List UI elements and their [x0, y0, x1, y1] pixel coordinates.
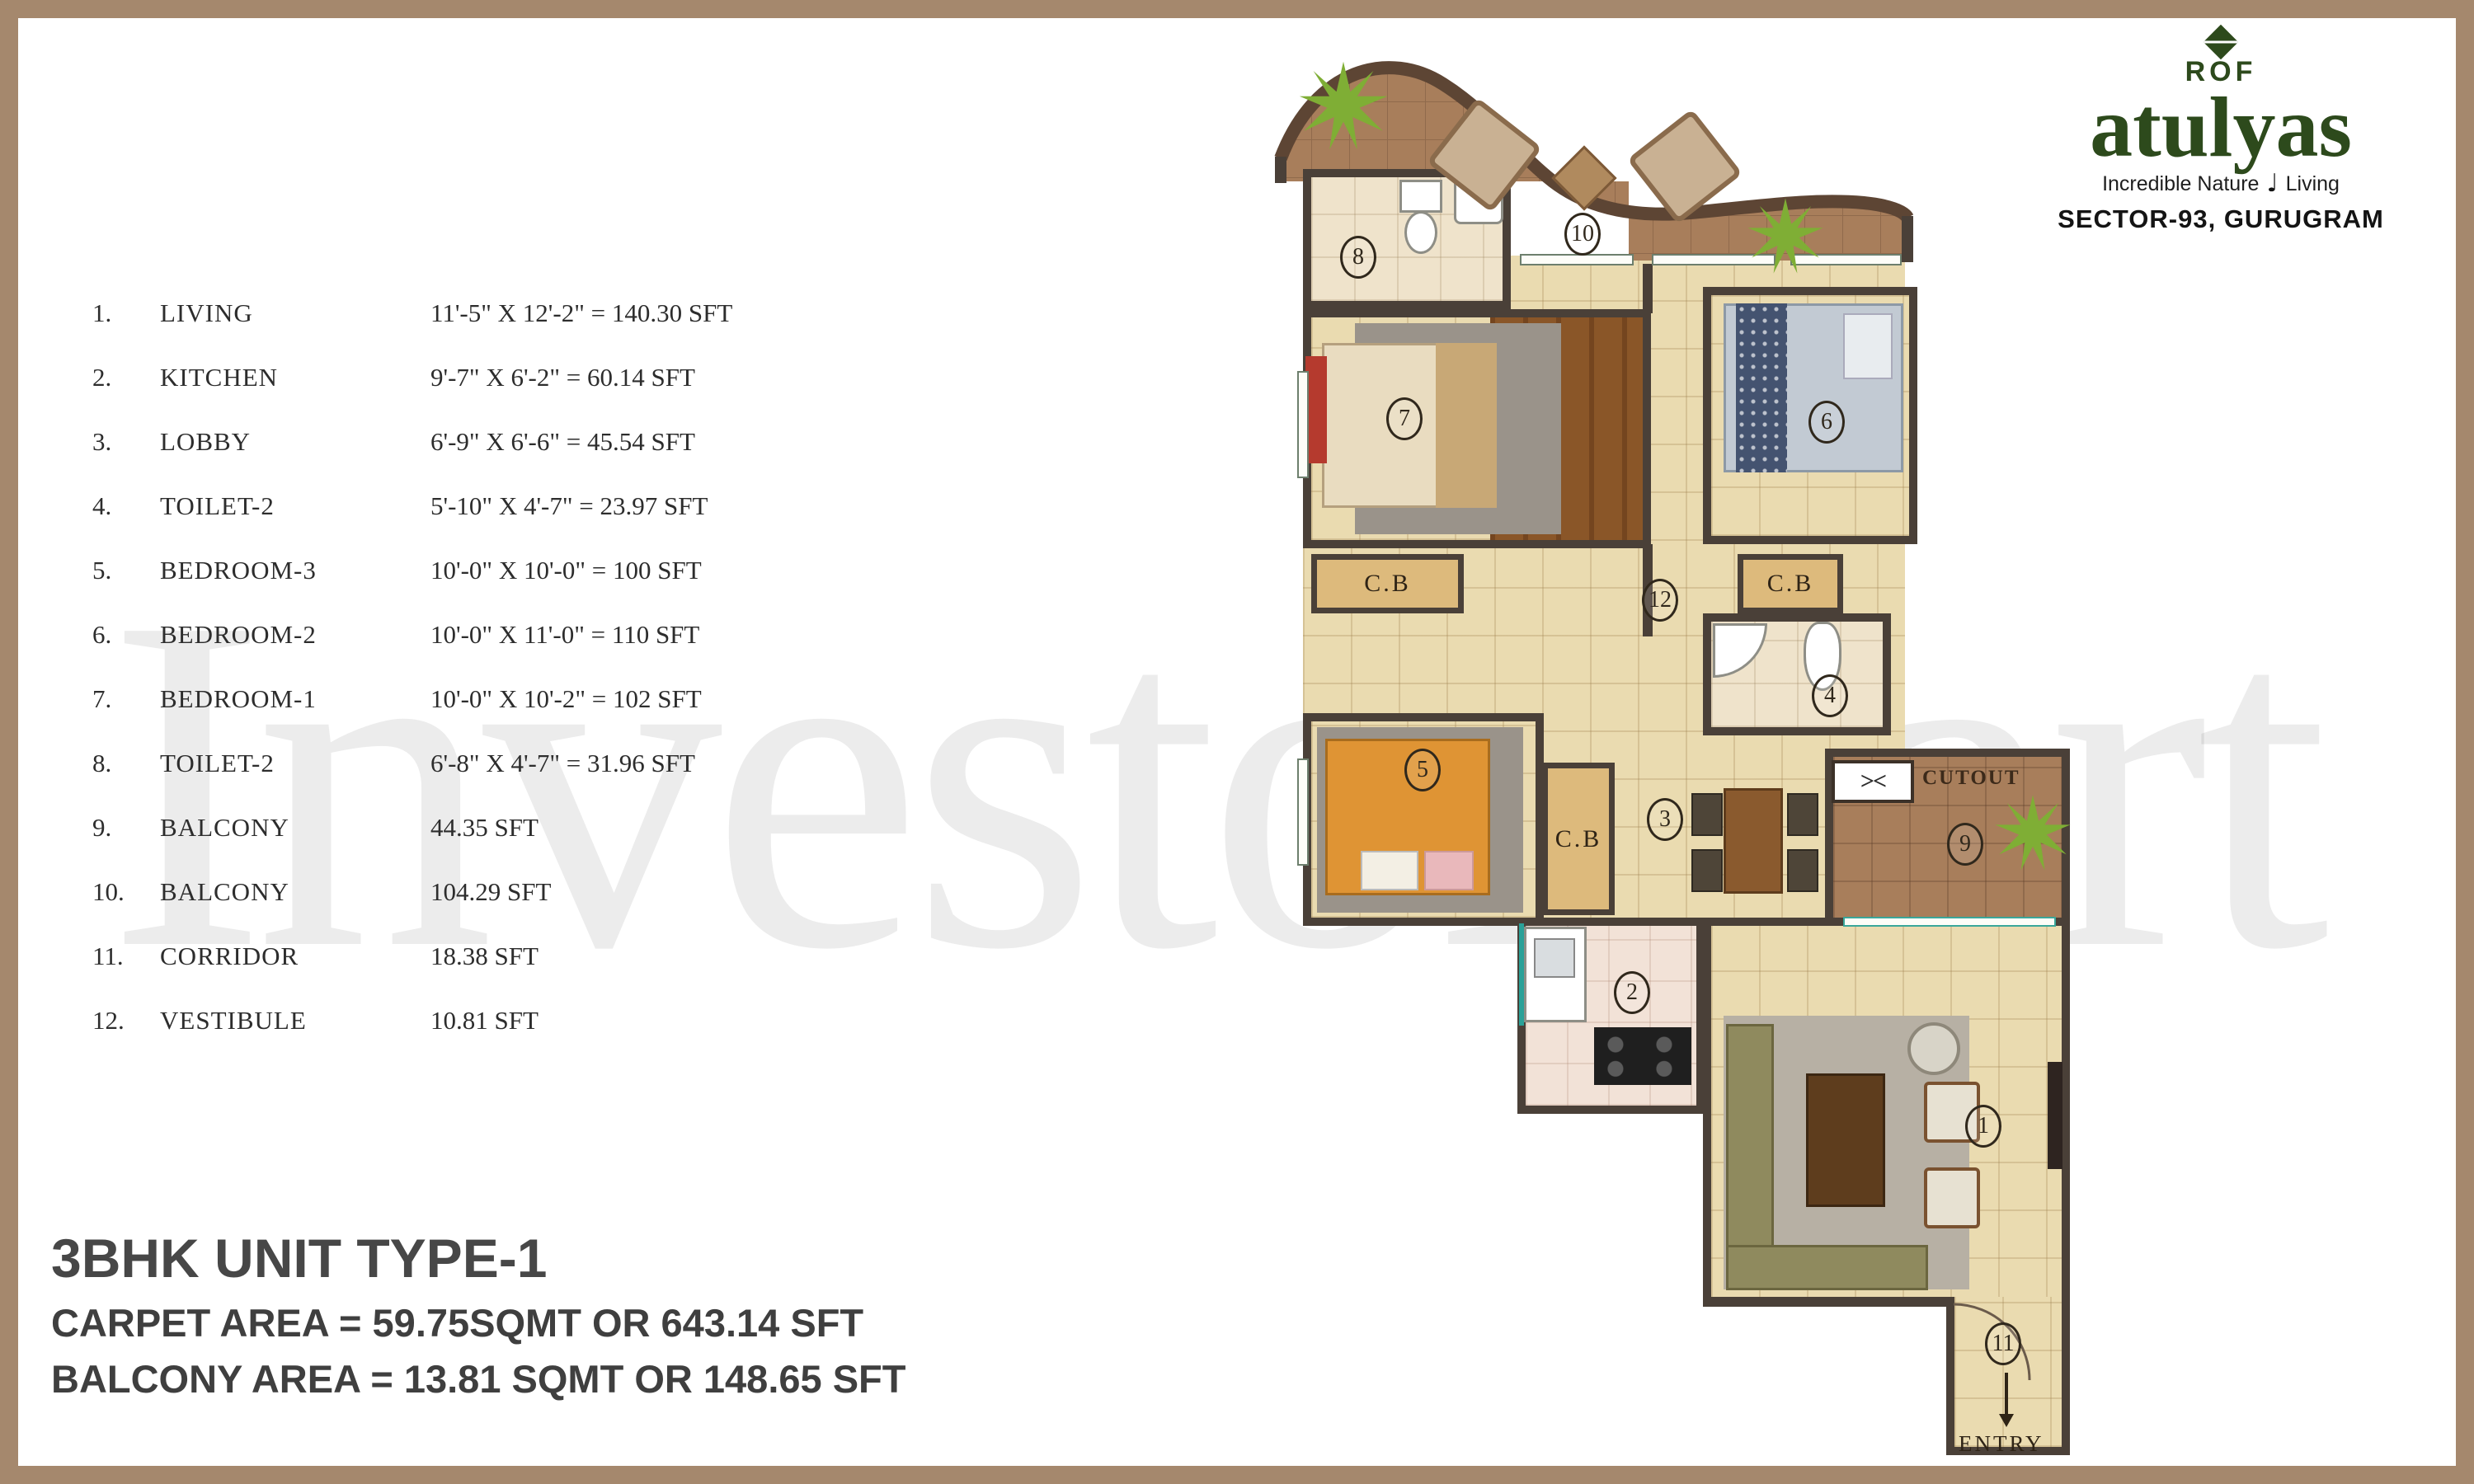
room-dimensions: 10'-0" X 10'-0" = 100 SFT: [430, 556, 859, 585]
table-row: 2.KITCHEN9'-7" X 6'-2" = 60.14 SFT: [92, 363, 859, 427]
toilet-wc-icon: [1399, 180, 1442, 213]
project-location: SECTOR-93, GURUGRAM: [2035, 204, 2406, 234]
floor-plan: C.B C.B C.B >< CUTOUT ENTRY: [1274, 16, 2074, 1469]
room-dimensions: 9'-7" X 6'-2" = 60.14 SFT: [430, 363, 859, 392]
plant-icon: [1297, 59, 1390, 152]
marker-vestibule: 12: [1642, 579, 1678, 622]
room-dimensions: 10.81 SFT: [430, 1006, 859, 1036]
bed-runner: [1436, 343, 1497, 508]
window: [1297, 371, 1309, 478]
cupboard-bedroom1: C.B: [1311, 554, 1464, 613]
tagline-right: Living: [2286, 172, 2340, 196]
floorplan-brochure: { "frame": {"border_color": "#a5886d", "…: [0, 0, 2474, 1484]
row-number: 8.: [92, 749, 160, 778]
row-number: 9.: [92, 813, 160, 843]
row-number: 1.: [92, 298, 160, 328]
room-name: BALCONY: [160, 813, 430, 843]
window: [1297, 758, 1309, 866]
marker-balcony-9: 9: [1947, 823, 1983, 866]
room-name: BEDROOM-1: [160, 684, 430, 714]
table-row: 6.BEDROOM-210'-0" X 11'-0" = 110 SFT: [92, 620, 859, 684]
note-icon: ♩: [2266, 174, 2278, 194]
room-name: TOILET-2: [160, 749, 430, 778]
room-dimensions: 10'-0" X 11'-0" = 110 SFT: [430, 620, 859, 650]
row-number: 7.: [92, 684, 160, 714]
cupboard-bedroom3: C.B: [1542, 763, 1615, 915]
room-name: LIVING: [160, 298, 430, 328]
marker-corridor: 11: [1985, 1322, 2021, 1365]
entry-arrow-head: [1999, 1414, 2014, 1427]
title-block: 3BHK UNIT TYPE-1 CARPET AREA = 59.75SQMT…: [51, 1227, 905, 1402]
table-row: 7.BEDROOM-110'-0" X 10'-2" = 102 SFT: [92, 684, 859, 749]
room-name: TOILET-2: [160, 491, 430, 521]
cupboard-label: C.B: [1555, 825, 1602, 853]
table-row: 5.BEDROOM-310'-0" X 10'-0" = 100 SFT: [92, 556, 859, 620]
row-number: 11.: [92, 942, 160, 971]
room-dimensions: 104.29 SFT: [430, 877, 859, 907]
dining-table-icon: [1724, 788, 1783, 894]
dining-chair-icon: [1787, 793, 1818, 836]
table-row: 9.BALCONY44.35 SFT: [92, 813, 859, 877]
row-number: 4.: [92, 491, 160, 521]
room-name: BEDROOM-3: [160, 556, 430, 585]
row-number: 6.: [92, 620, 160, 650]
row-number: 12.: [92, 1006, 160, 1036]
area-table: 1.LIVING11'-5" X 12'-2" = 140.30 SFT 2.K…: [92, 298, 859, 1070]
window: [1843, 917, 2056, 927]
room-name: BALCONY: [160, 877, 430, 907]
cutout-label: CUTOUT: [1922, 767, 2020, 790]
table-row: 1.LIVING11'-5" X 12'-2" = 140.30 SFT: [92, 298, 859, 363]
plant-icon: [1746, 196, 1825, 275]
table-row: 11.CORRIDOR18.38 SFT: [92, 942, 859, 1006]
sink-basin: [1534, 938, 1575, 978]
marker-balcony-10: 10: [1564, 213, 1601, 256]
table-row: 4.TOILET-25'-10" X 4'-7" = 23.97 SFT: [92, 491, 859, 556]
pillow-icon: [1361, 851, 1418, 890]
dining-chair-icon: [1691, 793, 1723, 836]
pillow-icon: [1843, 313, 1893, 379]
table-row: 8.TOILET-26'-8" X 4'-7" = 31.96 SFT: [92, 749, 859, 813]
entry-label: ENTRY: [1959, 1431, 2044, 1457]
table-row: 12.VESTIBULE10.81 SFT: [92, 1006, 859, 1070]
room-name: CORRIDOR: [160, 942, 430, 971]
room-dimensions: 6'-8" X 4'-7" = 31.96 SFT: [430, 749, 859, 778]
sofa-icon: [1726, 1024, 1774, 1265]
sofa-icon: [1726, 1245, 1928, 1290]
marker-bedroom-3: 5: [1404, 749, 1441, 791]
round-table-icon: [1907, 1022, 1960, 1075]
row-number: 5.: [92, 556, 160, 585]
dining-chair-icon: [1787, 849, 1818, 892]
marker-bedroom-1: 7: [1386, 397, 1423, 440]
entry-arrow: [2005, 1373, 2008, 1416]
marker-toilet-1: 8: [1340, 236, 1376, 279]
marker-toilet-2: 4: [1812, 674, 1848, 717]
room-name: LOBBY: [160, 427, 430, 457]
room-name: BEDROOM-2: [160, 620, 430, 650]
room-name: VESTIBULE: [160, 1006, 430, 1036]
room-dimensions: 18.38 SFT: [430, 942, 859, 971]
living-bottom-wall: [1703, 1297, 1950, 1307]
kitchen-accent-line: [1519, 923, 1524, 1026]
cupboard-label: C.B: [1364, 570, 1411, 598]
marker-bedroom-2: 6: [1808, 401, 1845, 444]
table-row: 10.BALCONY104.29 SFT: [92, 877, 859, 942]
toilet-wc-icon: [1404, 211, 1437, 254]
plant-icon: [1993, 793, 2072, 872]
row-number: 3.: [92, 427, 160, 457]
wall-stub: [1643, 264, 1653, 313]
brand-name: atulyas: [2035, 88, 2406, 167]
marker-living: 1: [1965, 1105, 2001, 1148]
coffee-table-icon: [1806, 1073, 1885, 1207]
room-dimensions: 11'-5" X 12'-2" = 140.30 SFT: [430, 298, 859, 328]
cutout-symbol-box: ><: [1832, 760, 1914, 803]
row-number: 2.: [92, 363, 160, 392]
room-name: KITCHEN: [160, 363, 430, 392]
table-row: 3.LOBBY6'-9" X 6'-6" = 45.54 SFT: [92, 427, 859, 491]
row-number: 10.: [92, 877, 160, 907]
tv-unit-icon: [2048, 1062, 2062, 1169]
balcony-area-line: BALCONY AREA = 13.81 SQMT OR 148.65 SFT: [51, 1356, 905, 1402]
accent-chair-icon: [1924, 1167, 1980, 1228]
marker-lobby: 3: [1647, 798, 1683, 841]
room-dimensions: 44.35 SFT: [430, 813, 859, 843]
leaf-icon: [2204, 25, 2238, 59]
window: [1520, 254, 1634, 265]
room-dimensions: 6'-9" X 6'-6" = 45.54 SFT: [430, 427, 859, 457]
room-dimensions: 10'-0" X 10'-2" = 102 SFT: [430, 684, 859, 714]
dining-chair-icon: [1691, 849, 1723, 892]
cupboard-bedroom2: C.B: [1738, 554, 1843, 613]
room-dimensions: 5'-10" X 4'-7" = 23.97 SFT: [430, 491, 859, 521]
unit-title: 3BHK UNIT TYPE-1: [51, 1227, 905, 1289]
carpet-area-line: CARPET AREA = 59.75SQMT OR 643.14 SFT: [51, 1300, 905, 1345]
brand-tagline: Incredible Nature ♩ Living: [2035, 172, 2406, 196]
cutout-symbol: ><: [1860, 768, 1885, 796]
hob-icon: [1594, 1027, 1691, 1085]
tagline-left: Incredible Nature: [2102, 172, 2259, 196]
pillow-icon: [1424, 851, 1474, 890]
marker-kitchen: 2: [1614, 971, 1650, 1014]
bed-runner: [1736, 303, 1787, 472]
brand-logo: ROF atulyas Incredible Nature ♩ Living S…: [2035, 30, 2406, 234]
cupboard-label: C.B: [1767, 570, 1814, 598]
